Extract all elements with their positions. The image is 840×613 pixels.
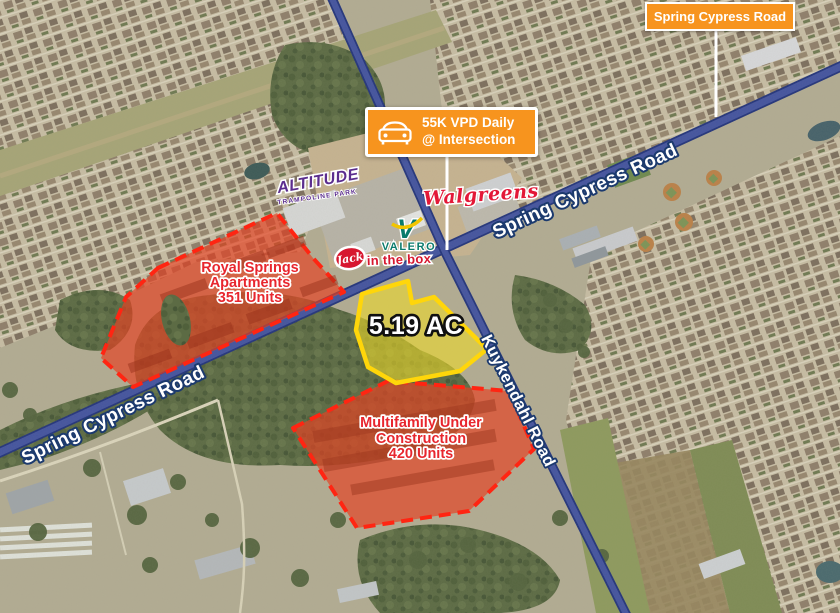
valero-v-mark: V [397, 214, 417, 244]
traffic-callout-line1: 55K VPD Daily [422, 115, 515, 132]
multifamily-line1: Multifamily Under [360, 415, 482, 431]
top-right-road-callout-text: Spring Cypress Road [654, 9, 786, 24]
royal-springs-line2: Apartments [210, 275, 291, 291]
jack-wordmark: in the box [367, 251, 432, 268]
basemap-svg: Spring Cypress Road Spring Cypress Road … [0, 0, 840, 613]
multifamily-line3: 420 Units [389, 446, 453, 462]
royal-springs-line1: Royal Springs [201, 260, 299, 276]
traffic-callout-line2: @ Intersection [422, 132, 515, 149]
multifamily-line2: Construction [376, 431, 466, 447]
site-acreage-label: 5.19 AC [369, 312, 463, 340]
traffic-callout-text: 55K VPD Daily @ Intersection [422, 115, 515, 149]
traffic-callout: 55K VPD Daily @ Intersection [365, 107, 538, 157]
top-right-road-callout: Spring Cypress Road [645, 2, 795, 31]
royal-springs-line3: 351 Units [218, 290, 282, 306]
car-icon [377, 119, 413, 146]
aerial-site-map: Spring Cypress Road Spring Cypress Road … [0, 0, 840, 613]
